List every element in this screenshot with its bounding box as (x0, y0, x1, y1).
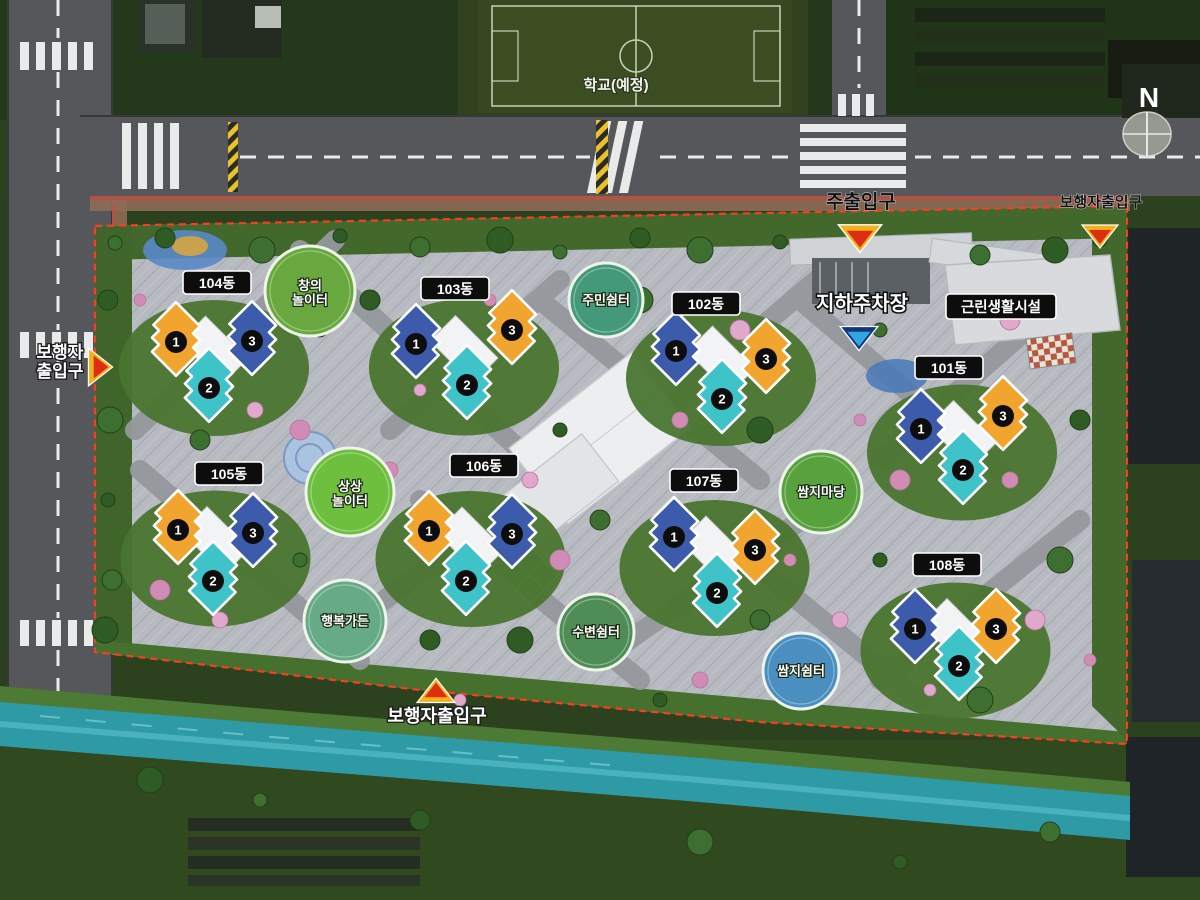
tree-icon (92, 617, 118, 643)
tree-icon (687, 237, 713, 263)
compass-panel (1122, 64, 1200, 118)
unit-number: 2 (718, 392, 725, 407)
blossom-tree-icon (290, 420, 310, 440)
blossom-tree-icon (1002, 472, 1018, 488)
blossom-tree-icon (454, 694, 466, 706)
tree-icon (1040, 822, 1060, 842)
unit-number: 1 (911, 622, 918, 637)
cluster-label: 107동 (686, 473, 722, 489)
amenity-changui-playground: 창의놀이터 (265, 246, 355, 336)
tree-icon (747, 417, 773, 443)
blossom-tree-icon (150, 580, 170, 600)
blossom-tree-icon (890, 470, 910, 490)
unit-number: 1 (672, 344, 679, 359)
unit-number: 3 (248, 334, 255, 349)
tree-icon (253, 793, 267, 807)
tree-icon (590, 510, 610, 530)
blossom-tree-icon (522, 472, 538, 488)
cluster-label: 106동 (466, 458, 502, 474)
blossom-tree-icon (854, 414, 866, 426)
tree-icon (97, 407, 123, 433)
unit-number: 2 (463, 378, 470, 393)
amenity-label: 주민쉼터 (582, 293, 630, 308)
blossom-tree-icon (414, 384, 426, 396)
cluster-label: 103동 (437, 281, 473, 297)
amenity-ssamji-yard: 쌈지마당 (780, 451, 862, 533)
unit-number: 2 (205, 381, 212, 396)
amenity-subyeon-shelter: 수변쉼터 (558, 594, 634, 670)
amenity-ssamji-shelter: 쌈지쉼터 (763, 633, 839, 709)
tree-icon (190, 430, 210, 450)
tree-icon (773, 235, 787, 249)
tree-icon (630, 228, 650, 248)
tree-icon (360, 290, 380, 310)
tree-icon (553, 245, 567, 259)
tree-icon (553, 423, 567, 437)
school-label: 학교(예정) (583, 76, 648, 94)
unit-number: 3 (751, 543, 758, 558)
tree-icon (333, 229, 347, 243)
tree-icon (108, 236, 122, 250)
unit-number: 1 (425, 524, 432, 539)
amenity-label: 수변쉼터 (572, 625, 620, 640)
tree-icon (750, 610, 770, 630)
unit-number: 1 (174, 523, 181, 538)
tree-icon (1047, 547, 1073, 573)
tree-icon (967, 687, 993, 713)
cluster-label: 104동 (199, 275, 235, 291)
facility-label: 지하주차장 (816, 292, 909, 315)
blossom-tree-icon (924, 684, 936, 696)
entrance-label: 보행자출입구 (387, 705, 486, 726)
site-plan-map: 123104동123103동123102동123101동123105동12310… (0, 0, 1200, 900)
tree-icon (487, 227, 513, 253)
unit-number: 2 (955, 659, 962, 674)
tree-icon (653, 693, 667, 707)
tree-icon (1042, 237, 1068, 263)
unit-number: 3 (508, 323, 515, 338)
tree-icon (137, 767, 163, 793)
blossom-tree-icon (550, 550, 570, 570)
tree-icon (249, 237, 275, 263)
unit-number: 2 (959, 463, 966, 478)
tree-icon (155, 228, 175, 248)
unit-number: 3 (762, 352, 769, 367)
tree-icon (893, 855, 907, 869)
facility-label: 근린생활시설 (961, 298, 1041, 316)
unit-number: 3 (999, 409, 1006, 424)
blossom-tree-icon (832, 612, 848, 628)
tree-icon (1070, 410, 1090, 430)
blossom-tree-icon (134, 294, 146, 306)
blossom-tree-icon (247, 402, 263, 418)
compass-north-label: N (1139, 82, 1159, 113)
unit-number: 3 (992, 622, 999, 637)
amenity-sangsang-playground: 상상놀이터 (306, 448, 394, 536)
tree-icon (420, 630, 440, 650)
entrance-label: 보행자출입구 (1060, 194, 1143, 211)
entrance-label: 보행자출입구 (37, 343, 84, 381)
tree-icon (873, 553, 887, 567)
tree-icon (410, 237, 430, 257)
unit-number: 2 (713, 586, 720, 601)
tree-icon (970, 245, 990, 265)
unit-number: 1 (917, 422, 924, 437)
unit-number: 3 (508, 527, 515, 542)
school-field (458, 0, 808, 120)
unit-number: 1 (670, 530, 677, 545)
blossom-tree-icon (784, 554, 796, 566)
unit-number: 1 (172, 335, 179, 350)
cluster-label: 102동 (688, 296, 724, 312)
facility-neighborhood-facility: 근린생활시설 (946, 294, 1056, 319)
site-plan-canvas: 123104동123103동123102동123101동123105동12310… (0, 0, 1200, 900)
amenity-jumin-shelter: 주민쉼터 (569, 263, 643, 337)
tree-icon (102, 570, 122, 590)
unit-number: 3 (249, 526, 256, 541)
entrance-label: 주출입구 (826, 191, 896, 213)
blossom-tree-icon (692, 672, 708, 688)
tree-icon (101, 493, 115, 507)
offsite-buildings-top-left (138, 0, 282, 58)
amenity-label: 행복가든 (321, 614, 369, 629)
tree-icon (293, 553, 307, 567)
tree-icon (687, 829, 713, 855)
school-label-layer: 학교(예정) (583, 76, 648, 94)
amenity-label: 쌈지마당 (797, 485, 845, 500)
unit-number: 1 (412, 337, 419, 352)
tree-icon (507, 627, 533, 653)
amenity-haengbok-garden: 행복가든 (304, 580, 386, 662)
amenity-label: 쌈지쉼터 (777, 664, 825, 679)
cluster-label: 105동 (211, 466, 247, 482)
blossom-tree-icon (1025, 610, 1045, 630)
cluster-label: 108동 (929, 557, 965, 573)
tree-icon (98, 290, 118, 310)
tree-icon (410, 810, 430, 830)
unit-number: 2 (462, 574, 469, 589)
cluster-label: 101동 (931, 360, 967, 376)
unit-number: 2 (209, 574, 216, 589)
blossom-tree-icon (672, 412, 688, 428)
blossom-tree-icon (1084, 654, 1096, 666)
